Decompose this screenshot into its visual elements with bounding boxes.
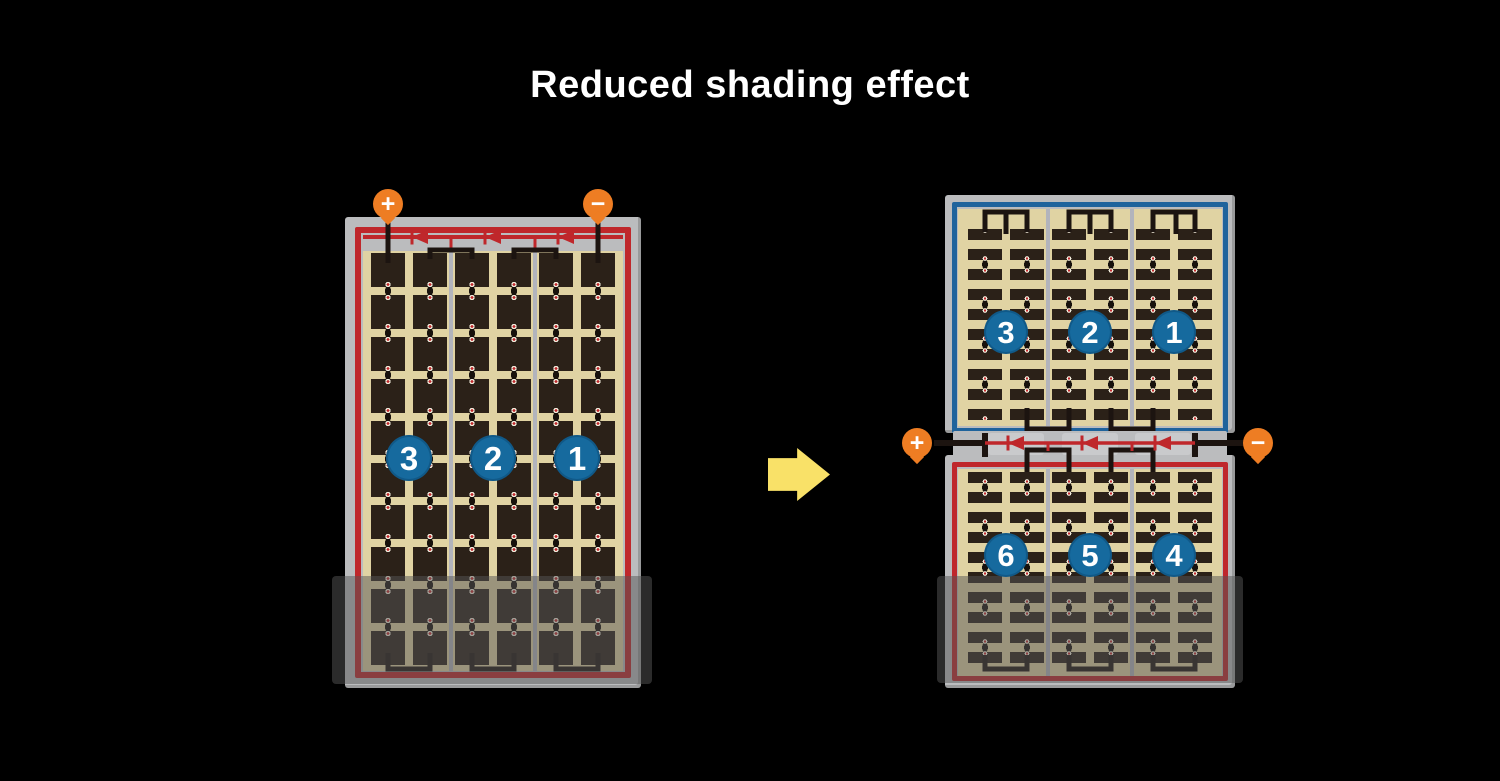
transition-arrow-icon bbox=[768, 448, 830, 501]
left-diode-3 bbox=[558, 230, 574, 245]
left-diode-2 bbox=[485, 230, 501, 245]
left-negative-terminal: − bbox=[583, 189, 613, 219]
junction-stub-right bbox=[1192, 433, 1198, 457]
left-positive-terminal: + bbox=[373, 189, 403, 219]
left-string-label-2: 2 bbox=[470, 435, 516, 481]
right-bottom-string-label-6: 6 bbox=[984, 533, 1028, 577]
right-junction-box bbox=[895, 400, 1285, 480]
right-top-string-label-2: 2 bbox=[1068, 310, 1112, 354]
left-string-label-1: 1 bbox=[554, 435, 600, 481]
left-shading-overlay bbox=[332, 576, 652, 684]
right-top-lower-bridges bbox=[1027, 408, 1153, 429]
left-string-bridges bbox=[430, 250, 556, 259]
left-string-label-3: 3 bbox=[386, 435, 432, 481]
junction-stub-left bbox=[982, 433, 988, 457]
right-bottom-string-label-4: 4 bbox=[1152, 533, 1196, 577]
right-positive-terminal: + bbox=[902, 428, 932, 458]
left-diode-1 bbox=[412, 230, 428, 245]
figure-reduced-shading-effect: Reduced shading effect 3 2 1 + − bbox=[0, 0, 1500, 781]
right-top-string-bridges bbox=[945, 205, 1235, 237]
right-top-string-label-1: 1 bbox=[1152, 310, 1196, 354]
right-top-string-label-3: 3 bbox=[984, 310, 1028, 354]
right-bottom-string-label-5: 5 bbox=[1068, 533, 1112, 577]
right-shading-overlay bbox=[937, 576, 1243, 683]
figure-title: Reduced shading effect bbox=[0, 64, 1500, 107]
right-negative-terminal: − bbox=[1243, 428, 1273, 458]
